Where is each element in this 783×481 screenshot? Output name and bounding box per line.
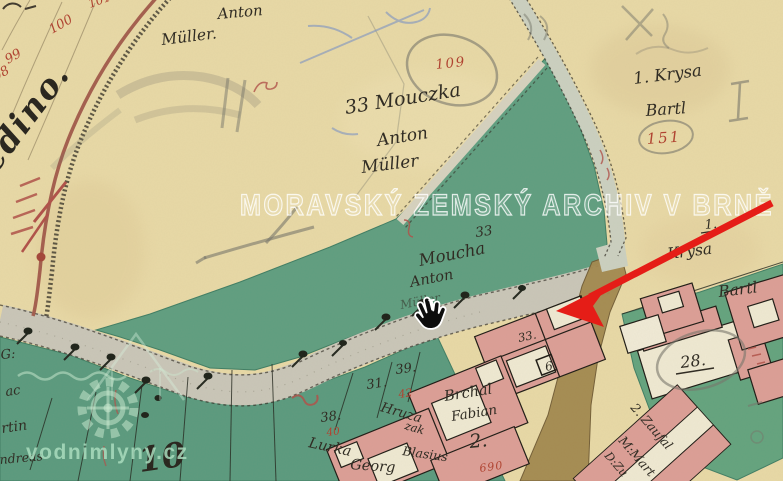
map-canvas[interactable]: Anton Müller. edino. 33 Mouczka Anton Mü… <box>0 0 783 481</box>
site-watermark-text: vodnimlyny.cz <box>26 441 189 464</box>
map-viewport[interactable]: Anton Müller. edino. 33 Mouczka Anton Mü… <box>0 0 783 481</box>
archive-watermark-text: MORAVSKÝ ZEMSKÝ ARCHIV V BRNĚ <box>240 188 774 222</box>
